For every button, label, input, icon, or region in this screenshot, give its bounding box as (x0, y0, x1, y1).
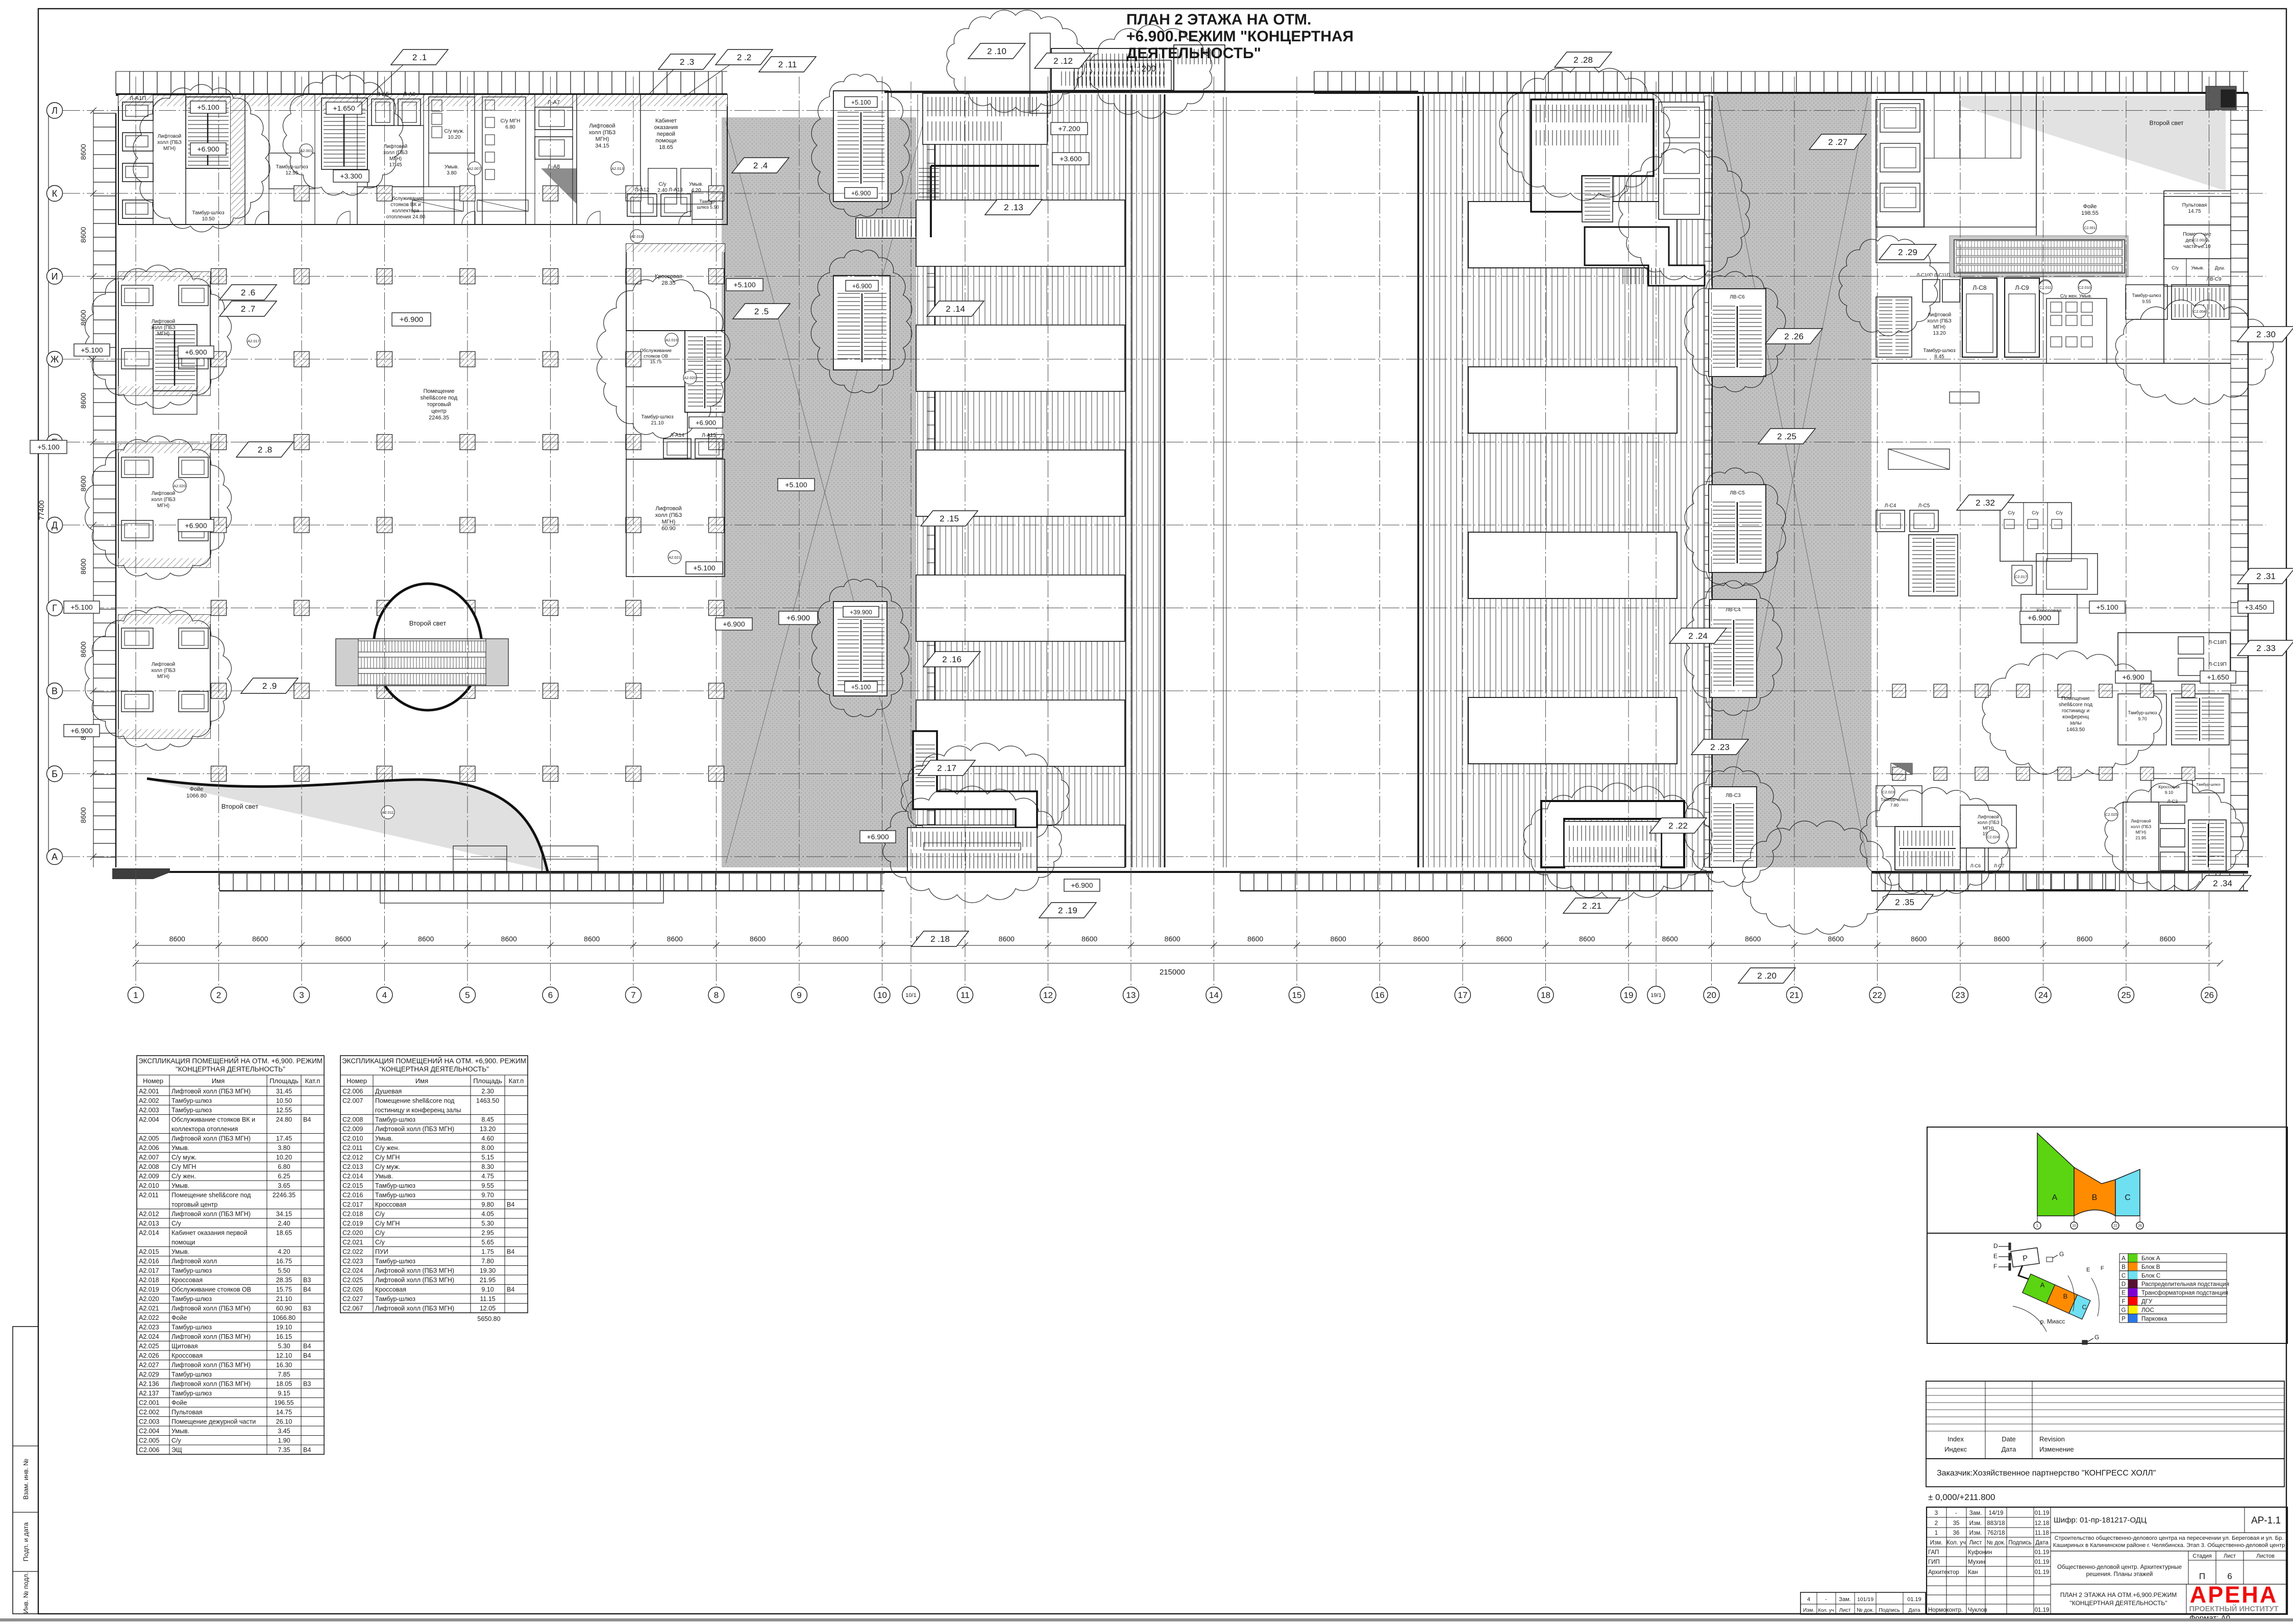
svg-text:А2.017: А2.017 (139, 1267, 159, 1275)
svg-text:+3.600: +3.600 (1059, 155, 1081, 163)
svg-text:Тамбур-шлюз: Тамбур-шлюз (375, 1116, 415, 1123)
svg-text:01.19: 01.19 (2035, 1550, 2050, 1556)
svg-text:Кол. уч: Кол. уч (1946, 1540, 1966, 1546)
svg-text:ГАП: ГАП (1928, 1550, 1939, 1556)
svg-text:2 .26: 2 .26 (1784, 332, 1804, 341)
svg-text:Умыв.: Умыв. (375, 1173, 393, 1180)
svg-text:С/у: С/у (659, 182, 667, 187)
svg-text:Лифтовой: Лифтовой (152, 661, 176, 667)
svg-text:А2.020: А2.020 (139, 1295, 159, 1303)
svg-text:А2.003: А2.003 (139, 1107, 159, 1114)
svg-text:Изм.: Изм. (1803, 1607, 1815, 1613)
svg-text:2 .16: 2 .16 (942, 655, 961, 664)
svg-text:11.18: 11.18 (2035, 1530, 2049, 1536)
svg-text:Второй свет: Второй свет (409, 619, 447, 627)
svg-text:8600: 8600 (1165, 935, 1180, 943)
svg-text:Лифтовой холл (ПБЗ МГН): Лифтовой холл (ПБЗ МГН) (171, 1088, 251, 1095)
svg-text:А2.004: А2.004 (139, 1116, 159, 1123)
svg-text:А2.011: А2.011 (382, 810, 393, 815)
svg-text:Л-С10П Л-С11П: Л-С10П Л-С11П (1916, 272, 1950, 278)
svg-text:Р: Р (2122, 1316, 2126, 1322)
svg-text:21.10: 21.10 (276, 1295, 292, 1303)
svg-text:12.55: 12.55 (276, 1107, 292, 1114)
svg-text:Revision: Revision (2039, 1435, 2065, 1443)
svg-text:18.65: 18.65 (659, 144, 673, 151)
svg-text:Блок С: Блок С (2141, 1273, 2160, 1279)
svg-text:А2.007: А2.007 (469, 166, 481, 171)
svg-text:С/у жен.: С/у жен. (375, 1144, 400, 1152)
svg-text:35: 35 (1953, 1520, 1960, 1527)
svg-text:7.80: 7.80 (1890, 803, 1899, 808)
svg-text:01.19: 01.19 (2035, 1569, 2050, 1576)
svg-text:E: E (2086, 1267, 2090, 1273)
svg-text:8600: 8600 (501, 935, 517, 943)
svg-text:C2.001: C2.001 (2084, 227, 2096, 230)
svg-text:Лист: Лист (2224, 1553, 2236, 1559)
svg-text:16.30: 16.30 (276, 1362, 292, 1369)
svg-text:9.70: 9.70 (2138, 716, 2147, 721)
svg-text:Стадия: Стадия (2192, 1553, 2212, 1559)
svg-text:E: E (1993, 1253, 1998, 1260)
svg-text:883/18: 883/18 (1987, 1520, 2005, 1527)
svg-text:8600: 8600 (79, 476, 87, 491)
svg-text:МГН): МГН) (1933, 324, 1945, 330)
svg-text:34.15: 34.15 (595, 143, 609, 149)
svg-text:Лифтовой холл: Лифтовой холл (171, 1258, 217, 1265)
svg-text:2 .13: 2 .13 (1004, 203, 1023, 212)
svg-text:Л-А7: Л-А7 (548, 99, 560, 106)
svg-text:+6.900: +6.900 (2122, 673, 2144, 681)
svg-text:2 .22: 2 .22 (1668, 821, 1688, 831)
svg-text:Архитектор: Архитектор (1928, 1569, 1959, 1576)
svg-text:Тамбур-шлюз: Тамбур-шлюз (2132, 293, 2161, 298)
svg-text:2 .8: 2 .8 (258, 445, 272, 455)
svg-text:shell&core под: shell&core под (2059, 702, 2092, 708)
svg-text:А: А (2052, 1193, 2058, 1202)
svg-text:В4: В4 (507, 1286, 514, 1293)
svg-text:13: 13 (1126, 990, 1136, 1000)
svg-text:С/у МГН: С/у МГН (375, 1154, 400, 1161)
svg-text:762/18: 762/18 (1987, 1530, 2005, 1536)
svg-text:Кат.п: Кат.п (509, 1077, 524, 1085)
svg-text:Шифр: 01-пр-181217-ОДЦ: Шифр: 01-пр-181217-ОДЦ (2054, 1516, 2147, 1525)
svg-text:10: 10 (2072, 1225, 2076, 1228)
svg-text:2 .11: 2 .11 (778, 60, 797, 69)
svg-text:А2.023: А2.023 (139, 1324, 159, 1331)
svg-text:1: 1 (2036, 1225, 2038, 1228)
svg-text:C2.010: C2.010 (2079, 285, 2091, 290)
svg-text:А2.001: А2.001 (139, 1088, 159, 1095)
svg-text:С/у жен.: С/у жен. (171, 1173, 196, 1180)
svg-text:Помещение: Помещение (423, 388, 454, 394)
svg-text:+6.900: +6.900 (851, 190, 871, 197)
svg-text:8.00: 8.00 (481, 1144, 494, 1152)
svg-text:8600: 8600 (584, 935, 600, 943)
svg-text:С2.022: С2.022 (342, 1248, 363, 1256)
svg-text:11: 11 (960, 990, 970, 1000)
svg-text:решения. Планы этажей: решения. Планы этажей (2086, 1571, 2153, 1578)
svg-text:12.10: 12.10 (276, 1352, 292, 1359)
svg-text:Кроссовая: Кроссовая (2158, 784, 2180, 789)
svg-text:+6.900: +6.900 (400, 315, 423, 324)
svg-text:8600: 8600 (79, 807, 87, 823)
svg-text:8600: 8600 (1330, 935, 1346, 943)
svg-text:2 .5: 2 .5 (754, 307, 769, 316)
svg-text:Л-С6: Л-С6 (1970, 863, 1981, 868)
svg-text:Е: Е (2122, 1290, 2126, 1296)
svg-text:холл (ПБЗ: холл (ПБЗ (1927, 318, 1952, 324)
svg-text:24: 24 (2038, 990, 2048, 1000)
svg-text:6.80: 6.80 (278, 1163, 290, 1170)
svg-text:оказания: оказания (654, 124, 678, 131)
svg-text:+3.450: +3.450 (2245, 603, 2266, 611)
svg-text:холл (ПБЗ: холл (ПБЗ (383, 150, 408, 156)
svg-text:18.65: 18.65 (276, 1230, 292, 1237)
svg-text:8600: 8600 (79, 392, 87, 408)
svg-text:Обслуживание: Обслуживание (388, 195, 423, 202)
svg-text:Тамбур-шлюз: Тамбур-шлюз (375, 1182, 415, 1189)
svg-text:Лифтовой: Лифтовой (152, 318, 176, 324)
svg-text:Умыв.: Умыв. (375, 1135, 393, 1142)
svg-text:2 .2: 2 .2 (737, 53, 751, 62)
svg-text:16.15: 16.15 (276, 1333, 292, 1340)
svg-text:ЛВ-С9: ЛВ-С9 (2206, 277, 2222, 282)
svg-text:+5.100: +5.100 (693, 564, 715, 572)
svg-text:Index: Index (1947, 1435, 1964, 1443)
svg-text:C2.004: C2.004 (2193, 309, 2206, 314)
svg-text:1: 1 (133, 990, 138, 1000)
svg-text:Л-С9: Л-С9 (2015, 284, 2029, 291)
svg-text:Инв. № подл.: Инв. № подл. (22, 1572, 30, 1614)
svg-text:А2.013: А2.013 (139, 1220, 159, 1227)
svg-text:ПРОЕКТНЫЙ ИНСТИТУТ: ПРОЕКТНЫЙ ИНСТИТУТ (2189, 1604, 2278, 1613)
svg-text:8600: 8600 (1911, 935, 1927, 943)
svg-text:А2.026: А2.026 (139, 1352, 159, 1359)
svg-text:С/у МГН: С/у МГН (171, 1163, 196, 1170)
svg-text:Лист: Лист (1969, 1540, 1983, 1546)
svg-text:ЛВ-С6: ЛВ-С6 (1730, 294, 1745, 300)
svg-text:С2.011: С2.011 (342, 1144, 362, 1152)
svg-text:Помещение shell&core под: Помещение shell&core под (375, 1097, 455, 1105)
svg-text:6.25: 6.25 (278, 1173, 290, 1180)
svg-text:С/у: С/у (171, 1437, 182, 1444)
svg-text:8600: 8600 (169, 935, 185, 943)
svg-text:залы: залы (2069, 720, 2081, 726)
svg-text:Лифтовой: Лифтовой (158, 133, 182, 139)
svg-text:А2.137: А2.137 (139, 1390, 159, 1397)
svg-text:8600: 8600 (833, 935, 849, 943)
svg-text:8600: 8600 (1413, 935, 1429, 943)
svg-text:2 .28: 2 .28 (1573, 55, 1593, 65)
svg-text:F: F (2122, 1299, 2125, 1305)
svg-text:А2.008: А2.008 (139, 1163, 159, 1170)
svg-text:Блок В: Блок В (2141, 1264, 2160, 1270)
svg-text:Л-А6: Л-А6 (403, 91, 415, 97)
svg-text:2: 2 (216, 990, 221, 1000)
svg-text:Л-С8: Л-С8 (1973, 284, 1987, 291)
svg-text:С2.024: С2.024 (342, 1267, 363, 1275)
svg-text:22: 22 (1872, 990, 1882, 1000)
svg-text:Зам.: Зам. (1969, 1510, 1982, 1516)
svg-text:Тамбур-шлюз: Тамбур-шлюз (641, 414, 674, 420)
svg-text:20: 20 (1707, 990, 1716, 1000)
svg-text:34.15: 34.15 (276, 1211, 292, 1218)
svg-text:Фойе: Фойе (190, 786, 204, 792)
svg-text:2 .32: 2 .32 (1976, 498, 1995, 508)
svg-text:ЭЩ: ЭЩ (171, 1446, 182, 1454)
svg-text:8600: 8600 (79, 558, 87, 574)
svg-text:Площадь: Площадь (473, 1077, 502, 1085)
svg-text:помощи: помощи (656, 138, 677, 144)
svg-text:Умыв.: Умыв. (171, 1182, 189, 1189)
svg-text:36: 36 (1953, 1530, 1960, 1536)
svg-text:А2.020: А2.020 (684, 376, 696, 380)
svg-text:10.50: 10.50 (276, 1097, 292, 1105)
svg-text:14.75: 14.75 (2188, 209, 2201, 214)
svg-text:8600: 8600 (79, 144, 87, 160)
svg-text:Строительство общественно-дело: Строительство общественно-делового центр… (2055, 1535, 2284, 1541)
svg-text:77400: 77400 (37, 500, 45, 520)
svg-text:Лифтовой холл (ПБЗ МГН): Лифтовой холл (ПБЗ МГН) (171, 1211, 251, 1218)
svg-text:2246.35: 2246.35 (429, 415, 449, 421)
svg-text:1066.80: 1066.80 (273, 1314, 295, 1321)
svg-text:9.80: 9.80 (481, 1201, 494, 1208)
svg-text:Л: Л (52, 106, 58, 116)
svg-text:А2.005: А2.005 (139, 1135, 159, 1142)
svg-text:Кан: Кан (1968, 1569, 1978, 1576)
svg-text:13.20: 13.20 (480, 1126, 496, 1133)
svg-text:25: 25 (2122, 990, 2131, 1000)
svg-text:р. Миасс: р. Миасс (2040, 1318, 2065, 1325)
svg-text:+1.650: +1.650 (2207, 673, 2229, 681)
svg-text:Лифтовой холл (ПБЗ МГН): Лифтовой холл (ПБЗ МГН) (171, 1305, 251, 1312)
svg-text:Тамбур-шлюз: Тамбур-шлюз (375, 1295, 415, 1303)
svg-text:С2.019: С2.019 (342, 1220, 363, 1227)
svg-text:С2.020: С2.020 (342, 1230, 363, 1237)
svg-text:2 .33: 2 .33 (2256, 643, 2276, 653)
svg-text:Второй свет: Второй свет (2149, 119, 2184, 127)
svg-text:А2.001: А2.001 (300, 148, 312, 153)
svg-text:5.30: 5.30 (278, 1343, 290, 1350)
svg-text:К: К (52, 188, 58, 198)
svg-text:Кроссовая: Кроссовая (375, 1201, 406, 1208)
svg-text:+39.900: +39.900 (850, 609, 872, 616)
svg-text:Лифтовой: Лифтовой (2131, 818, 2151, 823)
svg-text:конференц: конференц (2062, 714, 2089, 720)
svg-text:В4: В4 (303, 1446, 311, 1454)
svg-text:2: 2 (1935, 1520, 1938, 1527)
svg-text:АР-1.1: АР-1.1 (2251, 1515, 2281, 1526)
svg-text:Изм.: Изм. (1930, 1540, 1943, 1546)
svg-text:С/у: С/у (375, 1239, 385, 1246)
svg-text:9: 9 (797, 990, 801, 1000)
svg-text:1463.50: 1463.50 (2066, 727, 2085, 733)
svg-text:C2.023: C2.023 (1882, 790, 1894, 794)
svg-text:shell&core под: shell&core под (421, 395, 458, 401)
svg-text:Лифтовой: Лифтовой (1978, 814, 1999, 819)
svg-text:2 .35: 2 .35 (1895, 897, 1914, 907)
svg-text:6: 6 (2227, 1571, 2232, 1581)
svg-text:8600: 8600 (335, 935, 351, 943)
svg-text:10.50: 10.50 (202, 216, 214, 222)
svg-text:5650.80: 5650.80 (477, 1315, 500, 1322)
svg-text:Умыв.: Умыв. (171, 1144, 189, 1152)
svg-text:А2.009: А2.009 (139, 1173, 159, 1180)
svg-text:7.85: 7.85 (278, 1371, 290, 1378)
svg-text:+6.900: +6.900 (70, 727, 92, 735)
svg-text:Тамбур-шлюз: Тамбур-шлюз (171, 1295, 212, 1303)
svg-text:2.40: 2.40 (278, 1220, 290, 1227)
svg-text:Г: Г (52, 603, 57, 613)
svg-text:Распределительная подстанция: Распределительная подстанция (2141, 1282, 2229, 1288)
svg-text:01.19: 01.19 (2035, 1559, 2050, 1565)
svg-text:Кол. уч: Кол. уч (1818, 1608, 1834, 1613)
svg-text:С2.009: С2.009 (342, 1126, 363, 1133)
svg-text:торговый центр: торговый центр (171, 1201, 217, 1208)
svg-text:Куфонин: Куфонин (1968, 1550, 1992, 1556)
svg-text:С/у муж.: С/у муж. (171, 1154, 196, 1161)
svg-text:G: G (2059, 1251, 2064, 1258)
svg-text:D: D (2122, 1282, 2126, 1288)
svg-text:МГН): МГН) (596, 136, 609, 142)
svg-text:Номер: Номер (347, 1077, 367, 1085)
svg-text:С/у: С/у (171, 1220, 182, 1227)
svg-text:ПЛАН 2 ЭТАЖА НА ОТМ.: ПЛАН 2 ЭТАЖА НА ОТМ. (1126, 11, 1312, 28)
svg-text:2 .6: 2 .6 (241, 288, 255, 297)
svg-text:А2.018: А2.018 (631, 234, 643, 239)
svg-text:11.15: 11.15 (480, 1295, 495, 1303)
svg-text:стояков ВК и: стояков ВК и (390, 202, 421, 208)
svg-text:+3.300: +3.300 (340, 172, 362, 180)
svg-text:+6.900: +6.900 (197, 145, 219, 153)
svg-text:Фойе: Фойе (2083, 204, 2097, 210)
svg-text:Л-С3: Л-С3 (2167, 799, 2178, 804)
svg-text:торговый: торговый (427, 402, 451, 408)
svg-text:МГН): МГН) (157, 503, 169, 509)
svg-text:18: 18 (1541, 990, 1550, 1000)
svg-text:22: 22 (2113, 1225, 2117, 1228)
svg-text:Заказчик:Хозяйственное партнер: Заказчик:Хозяйственное партнерство "КОНГ… (1937, 1469, 2156, 1478)
svg-text:+7.200: +7.200 (1058, 124, 1080, 133)
svg-text:31.45: 31.45 (276, 1088, 292, 1095)
svg-text:А2.017: А2.017 (248, 339, 260, 343)
svg-text:2.95: 2.95 (481, 1230, 494, 1237)
svg-text:Лифтовой холл (ПБЗ МГН): Лифтовой холл (ПБЗ МГН) (171, 1362, 251, 1369)
svg-text:Л-С7: Л-С7 (1994, 863, 2004, 868)
svg-text:19.30: 19.30 (480, 1267, 496, 1275)
svg-text:Щитовая: Щитовая (171, 1343, 198, 1350)
svg-text:С2.004: С2.004 (139, 1428, 159, 1435)
svg-text:С2.006: С2.006 (342, 1088, 363, 1095)
svg-text:Индекс: Индекс (1944, 1445, 1967, 1453)
svg-text:5.15: 5.15 (481, 1154, 494, 1161)
svg-text:196.55: 196.55 (274, 1400, 293, 1407)
svg-text:26.10: 26.10 (276, 1418, 292, 1426)
svg-text:-: - (1825, 1596, 1827, 1603)
svg-text:9.15: 9.15 (278, 1390, 290, 1397)
svg-text:холл (ПБЗ: холл (ПБЗ (2131, 824, 2152, 829)
svg-text:АРЕНА: АРЕНА (2190, 1582, 2278, 1608)
svg-text:Тамбур-шлюз: Тамбур-шлюз (1923, 347, 1956, 354)
svg-text:24.80: 24.80 (276, 1116, 292, 1123)
svg-text:холл (ПБЗ: холл (ПБЗ (151, 325, 176, 331)
svg-text:9.55: 9.55 (481, 1182, 494, 1189)
svg-text:+1.650: +1.650 (333, 104, 355, 112)
svg-text:01.19: 01.19 (2035, 1607, 2050, 1613)
svg-text:Фойе: Фойе (171, 1400, 187, 1407)
svg-text:С2.027: С2.027 (342, 1295, 363, 1303)
svg-text:Умыв.: Умыв. (445, 164, 459, 170)
svg-text:А2.029: А2.029 (139, 1371, 159, 1378)
svg-text:8600: 8600 (79, 310, 87, 326)
svg-text:12: 12 (1043, 990, 1053, 1000)
svg-text:10: 10 (877, 990, 887, 1000)
svg-text:2 .25: 2 .25 (1777, 432, 1796, 441)
svg-text:В: В (2092, 1193, 2098, 1202)
svg-text:4.20: 4.20 (691, 188, 701, 193)
svg-text:4.60: 4.60 (481, 1135, 494, 1142)
svg-text:С2.023: С2.023 (342, 1258, 363, 1265)
svg-text:17: 17 (1458, 990, 1468, 1000)
svg-text:15.75: 15.75 (650, 359, 662, 364)
svg-text:+6.900: +6.900 (185, 521, 207, 530)
svg-text:14.75: 14.75 (276, 1409, 292, 1416)
svg-text:Ж: Ж (51, 354, 59, 364)
svg-text:13.20: 13.20 (1933, 331, 1945, 336)
svg-text:С2.021: С2.021 (342, 1239, 363, 1246)
svg-text:Имя: Имя (212, 1077, 225, 1085)
svg-text:С: С (2082, 1304, 2087, 1311)
svg-text:С2.018: С2.018 (342, 1211, 363, 1218)
svg-text:Общественно-деловой центр. Арх: Общественно-деловой центр. Архитектурные (2057, 1564, 2182, 1570)
svg-text:5.65: 5.65 (481, 1239, 494, 1246)
svg-text:Помещение: Помещение (2061, 696, 2090, 702)
svg-text:Кат.п: Кат.п (305, 1077, 320, 1085)
svg-text:5: 5 (465, 990, 470, 1000)
svg-text:8600: 8600 (1247, 935, 1263, 943)
svg-text:+6.900: +6.900 (1071, 881, 1093, 889)
svg-text:2 .24: 2 .24 (1688, 631, 1708, 641)
svg-text:Умыв.: Умыв. (2191, 265, 2204, 270)
svg-text:Подпись: Подпись (1879, 1607, 1900, 1613)
svg-text:Б: Б (52, 769, 58, 779)
svg-text:А2.006: А2.006 (139, 1144, 159, 1152)
svg-text:Тамбур-: Тамбур- (699, 199, 717, 204)
svg-text:Кроссовая: Кроссовая (171, 1352, 203, 1359)
svg-text:П: П (2199, 1571, 2205, 1581)
svg-text:А2.019: А2.019 (139, 1286, 159, 1293)
svg-text:холл (ПБЗ: холл (ПБЗ (157, 140, 182, 145)
svg-text:8600: 8600 (252, 935, 268, 943)
svg-text:Второй свет: Второй свет (221, 803, 259, 810)
svg-text:Лифтовой холл (ПБЗ МГН): Лифтовой холл (ПБЗ МГН) (375, 1305, 454, 1312)
svg-text:D: D (1993, 1242, 1998, 1250)
svg-text:6: 6 (548, 990, 553, 1000)
svg-text:8600: 8600 (1496, 935, 1512, 943)
svg-text:8.45: 8.45 (481, 1116, 494, 1123)
svg-text:С2.013: С2.013 (342, 1163, 363, 1170)
svg-text:+5.100: +5.100 (197, 103, 219, 111)
svg-text:26: 26 (2204, 990, 2214, 1000)
svg-text:1.90: 1.90 (278, 1437, 290, 1444)
svg-text:Л-А12: Л-А12 (635, 187, 649, 193)
svg-text:В4: В4 (303, 1352, 311, 1359)
svg-text:C2.024: C2.024 (1987, 835, 1999, 839)
svg-text:Лифтовой холл (ПБЗ МГН): Лифтовой холл (ПБЗ МГН) (375, 1126, 454, 1133)
svg-text:8.30: 8.30 (481, 1163, 494, 1170)
svg-text:Зам.: Зам. (1839, 1596, 1851, 1603)
svg-text:23: 23 (1956, 990, 1965, 1000)
